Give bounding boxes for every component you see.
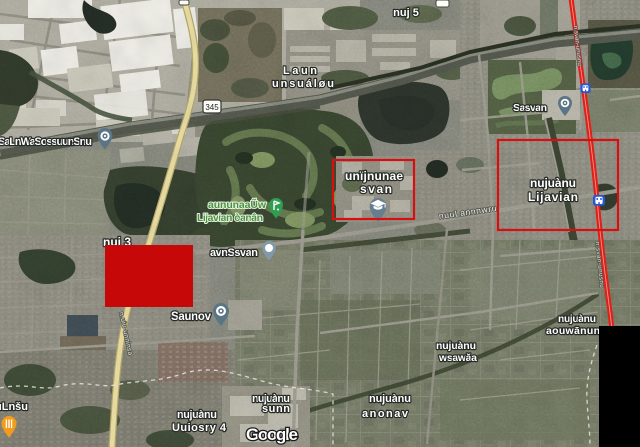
svg-text:nujuànu: nujuànu	[558, 313, 596, 325]
svg-text:Sasvan: Sasvan	[513, 102, 547, 114]
svg-text:Lijavian: Lijavian	[528, 190, 578, 204]
svg-text:Google: Google	[246, 425, 298, 444]
svg-text:Uuiosry 4: Uuiosry 4	[172, 422, 227, 434]
svg-text:Laun: Laun	[283, 65, 317, 77]
svg-text:aununaaŨw: aununaaŨw	[208, 198, 267, 211]
svg-text:svan: svan	[360, 182, 392, 196]
svg-text:nuj 5: nuj 5	[393, 7, 419, 19]
svg-text:Lijavian òanân: Lijavian òanân	[197, 212, 263, 224]
svg-text:aouwānun: aouwānun	[546, 325, 600, 337]
svg-text:unïjnunae: unïjnunae	[345, 169, 403, 183]
svg-text:wsawăa: wsawăa	[438, 352, 477, 364]
svg-text:nujuànu: nujuànu	[436, 340, 476, 352]
svg-text:anonav: anonav	[362, 408, 409, 420]
svg-text:345: 345	[205, 103, 219, 112]
svg-text:nujuànu: nujuànu	[369, 393, 411, 405]
svg-text:nujuànu: nujuànu	[177, 409, 217, 421]
svg-text:uLnšu: uLnšu	[0, 401, 28, 413]
svg-text:unsuáløu: unsuáløu	[272, 78, 334, 90]
svg-text:SaLnWaSossuunSnu: SaLnWaSossuunSnu	[0, 136, 92, 148]
svg-text:sunn: sunn	[262, 403, 290, 415]
svg-text:nujuànu: nujuànu	[530, 176, 576, 190]
svg-text:Saunov: Saunov	[171, 311, 212, 323]
svg-text:avnSsvan: avnSsvan	[210, 247, 258, 259]
